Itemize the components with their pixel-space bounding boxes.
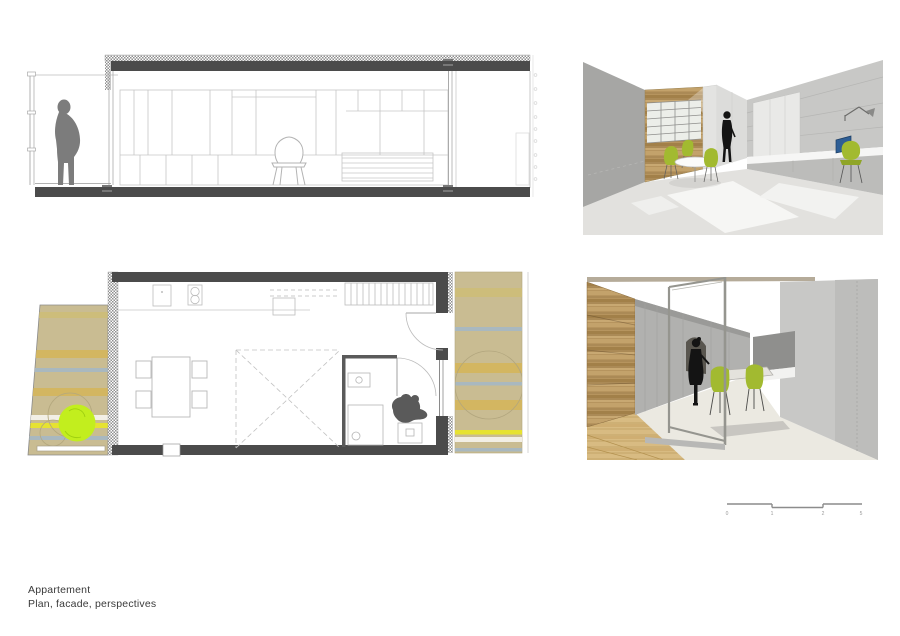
persp2-wood-wall [587, 282, 635, 427]
plan-dining-table [136, 357, 207, 417]
persp1-window-band [647, 100, 701, 143]
plan-bed-dashed [236, 350, 340, 448]
scale-bar: 0 1 2 5 [725, 500, 865, 518]
plan-wardrobe [345, 283, 433, 305]
plan-person-silhouette [392, 394, 427, 423]
facade-cabinetry [120, 90, 448, 185]
facade-section-marks [534, 74, 537, 181]
plan-tree-circle [59, 405, 96, 442]
facade-roof-band [105, 55, 533, 197]
plan-left-terrace [25, 305, 110, 455]
plan-right-terrace [455, 272, 528, 453]
presentation-sheet: 0 1 2 5 Appartement Plan, facade, perspe… [0, 0, 900, 636]
facade-right-room [449, 71, 537, 188]
perspective-living-room [583, 55, 883, 235]
facade-connector-bolts [102, 59, 453, 192]
plan-kitchen [118, 283, 433, 315]
facade-person-silhouette [55, 100, 80, 186]
sheet-subtitle: Plan, facade, perspectives [28, 598, 156, 612]
facade-section-drawing [10, 45, 540, 205]
plan-bathroom [342, 355, 436, 447]
facade-chair [272, 137, 306, 185]
floor-plan-drawing [25, 265, 535, 460]
perspective-terrace-view [585, 275, 880, 460]
scale-label-1: 1 [771, 511, 774, 517]
scale-label-0: 0 [726, 511, 729, 517]
project-title: Appartement [28, 584, 156, 598]
scale-label-5: 5 [860, 511, 863, 517]
scale-label-2: 2 [822, 511, 825, 517]
title-block: Appartement Plan, facade, perspectives [28, 584, 156, 611]
plan-entry-door [406, 313, 443, 350]
